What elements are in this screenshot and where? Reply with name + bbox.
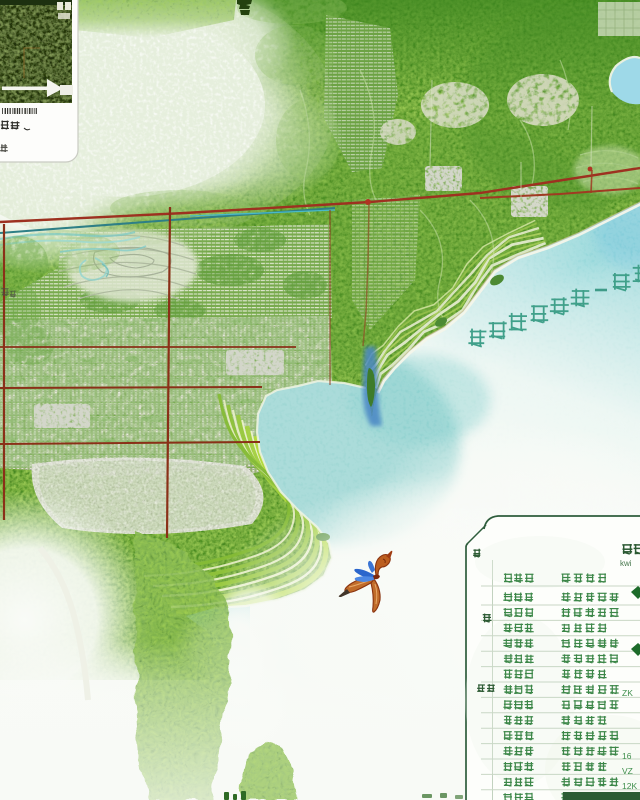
svg-text:16: 16 [622, 751, 632, 761]
svg-text:ZK: ZK [622, 688, 633, 698]
svg-text:12K: 12K [622, 781, 637, 791]
svg-text:kwi: kwi [620, 559, 632, 568]
svg-text:VZ: VZ [622, 766, 633, 776]
